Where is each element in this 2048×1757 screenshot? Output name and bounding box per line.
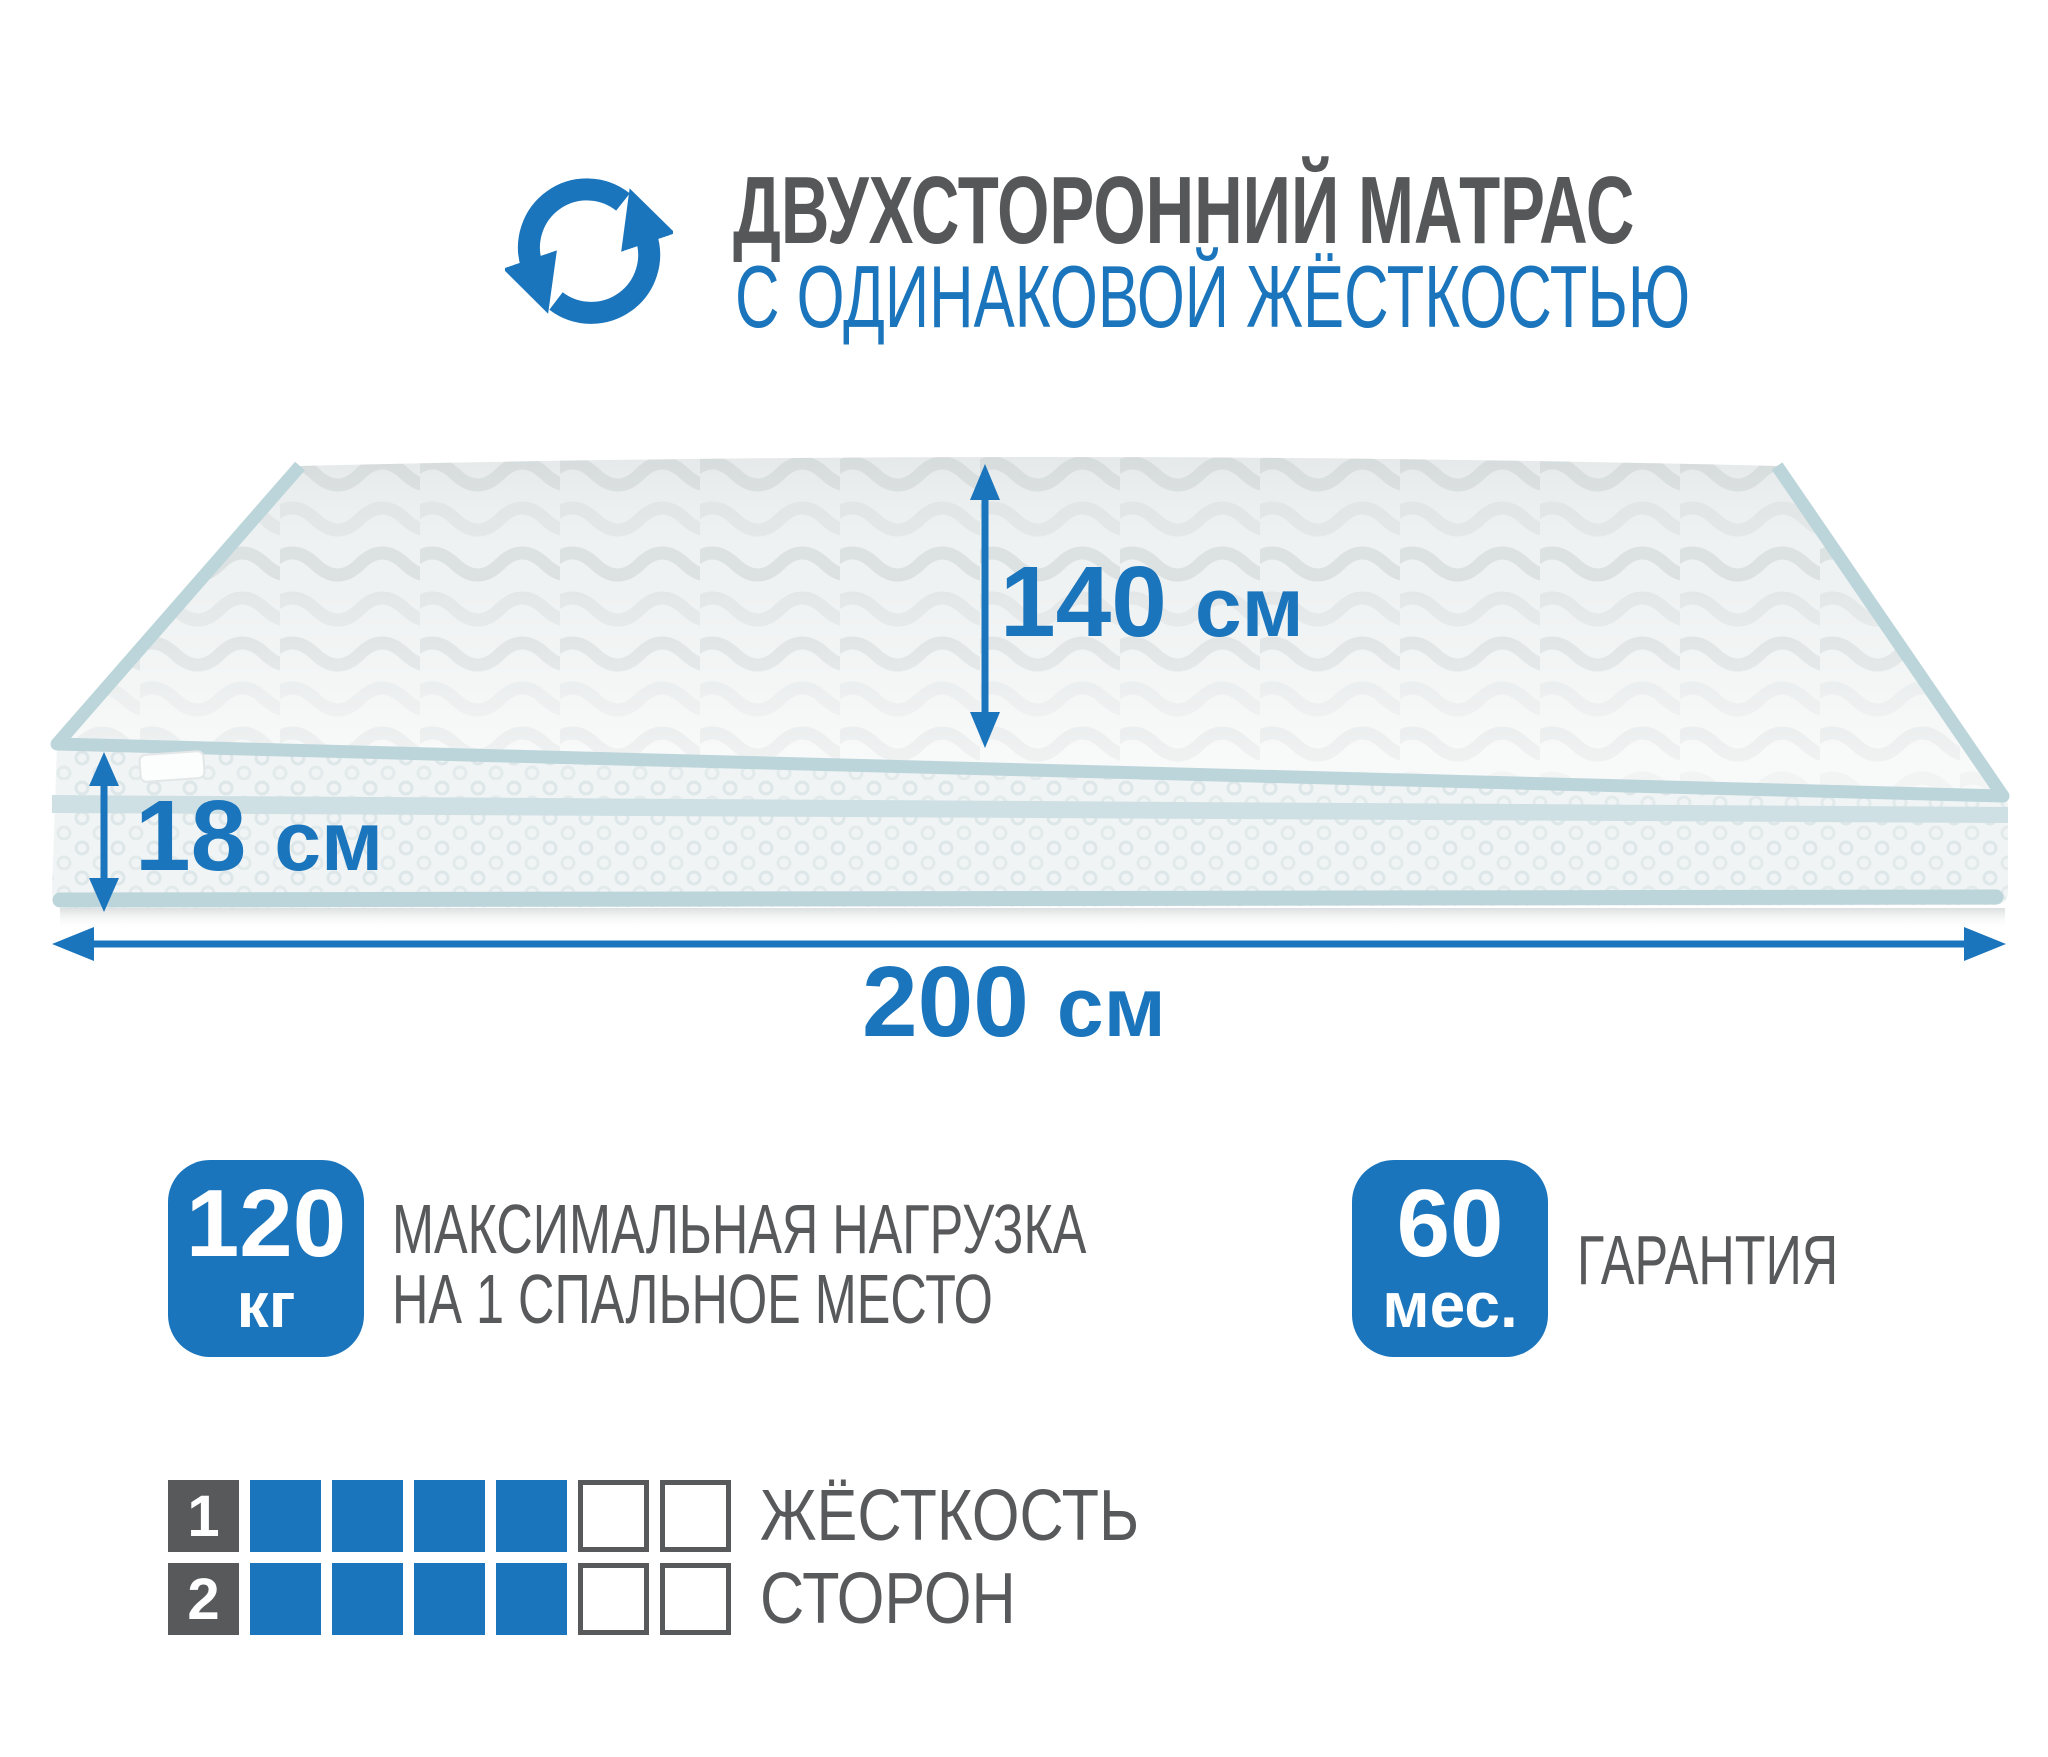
height-value: 18	[135, 780, 246, 892]
max-load-caption-line2: НА 1 СПАЛЬНОЕ МЕСТО	[392, 1264, 993, 1334]
height-label: 18см	[135, 786, 383, 886]
max-load-caption: МАКСИМАЛЬНАЯ НАГРУЗКА НА 1 СПАЛЬНОЕ МЕСТ…	[392, 1194, 1356, 1334]
length-value: 200	[862, 946, 1029, 1058]
max-load-caption-line1: МАКСИМАЛЬНАЯ НАГРУЗКА	[392, 1194, 1086, 1264]
firmness-cell-filled	[332, 1563, 403, 1635]
firmness-label-line2: СТОРОН	[760, 1563, 1061, 1635]
mattress-illustration	[0, 0, 2048, 1060]
width-value: 140	[1000, 546, 1167, 658]
max-load-unit: кг	[237, 1273, 296, 1337]
firmness-cell-empty	[660, 1563, 731, 1635]
mattress-shadow	[60, 908, 2005, 930]
firmness-cell-empty	[660, 1480, 731, 1552]
firmness-cell-empty	[578, 1563, 649, 1635]
firmness-cell-filled	[496, 1480, 567, 1552]
firmness-cell-empty	[578, 1480, 649, 1552]
firmness-row-number: 1	[168, 1480, 239, 1552]
firmness-cell-filled	[250, 1563, 321, 1635]
firmness-cell-filled	[332, 1480, 403, 1552]
firmness-scale: 1 2	[168, 1480, 731, 1635]
mattress-bottom-piping	[60, 897, 1996, 900]
height-unit: см	[274, 794, 383, 888]
mattress-infographic: ДВУХСТОРОННИЙ МАТРАС С ОДИНАКОВОЙ ЖЁСТКО…	[0, 0, 2048, 1757]
warranty-caption: ГАРАНТИЯ	[1577, 1226, 1940, 1294]
length-label: 200см	[862, 952, 1166, 1052]
max-load-badge: 120 кг	[168, 1160, 364, 1357]
firmness-cell-filled	[250, 1480, 321, 1552]
firmness-cell-filled	[496, 1563, 567, 1635]
length-unit: см	[1057, 960, 1166, 1054]
firmness-row-1: 1	[168, 1480, 731, 1552]
warranty-caption-text: ГАРАНТИЯ	[1577, 1226, 1838, 1294]
firmness-cell-filled	[414, 1480, 485, 1552]
mattress-tag	[139, 751, 205, 782]
warranty-badge: 60 мес.	[1352, 1160, 1548, 1357]
width-unit: см	[1195, 560, 1304, 654]
firmness-row-number: 2	[168, 1563, 239, 1635]
max-load-value: 120	[186, 1180, 346, 1268]
warranty-value: 60	[1397, 1180, 1504, 1268]
firmness-cell-filled	[414, 1563, 485, 1635]
firmness-row-2: 2	[168, 1563, 731, 1635]
width-label: 140см	[1000, 552, 1304, 652]
warranty-unit: мес.	[1382, 1273, 1517, 1337]
firmness-label-line1: ЖЁСТКОСТЬ	[760, 1480, 1206, 1552]
